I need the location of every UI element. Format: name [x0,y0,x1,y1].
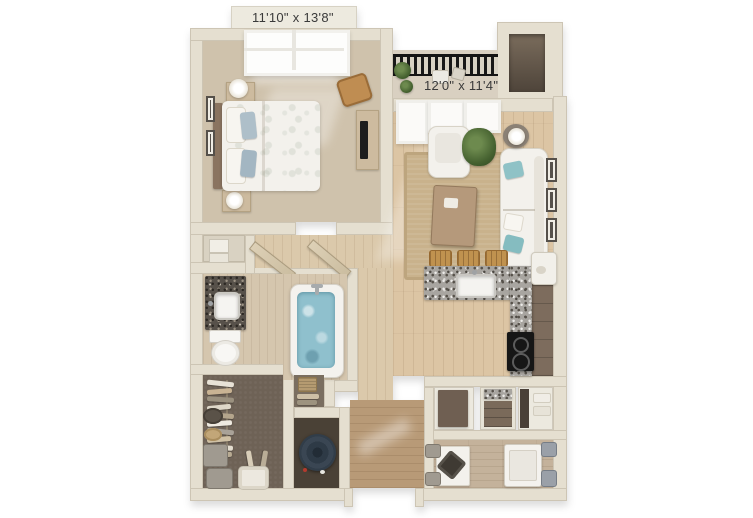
bed-duvet-fold [262,101,265,191]
laundry-cube-2 [425,472,441,486]
closet-square-basket [203,444,228,467]
kitchen-sink [456,274,496,298]
closet-round-basket-2 [204,428,222,441]
bathtub-faucet-stem [315,286,319,295]
bedroom-dimensions-label: 11'10" x 13'8" [252,10,334,25]
range-burner-2 [512,353,530,371]
living-floor-plant [462,128,496,166]
pantry-door-panel [520,389,529,428]
bedroom-tv [360,121,368,159]
vanity-faucet [208,301,213,306]
living-wall-art-2 [546,188,557,212]
sofa-seat-divider [503,209,535,211]
living-dimensions-label: 12'0" x 11'4" [424,78,498,93]
refrigerator-handle [536,266,546,274]
wall-tub-alcove-right [347,268,358,392]
water-heater-valve-red [303,468,307,472]
bar-stool-3 [485,250,508,267]
side-table-lamp-top [508,128,525,145]
wall-bath-closet-divider [190,364,294,375]
laundry-basket-2 [541,470,557,487]
bar-stool-2 [457,250,480,267]
entry-door-jamb-left [344,488,353,507]
coffee-table-decor [444,198,459,209]
kitchen-cabinets [532,284,553,376]
bar-stool-1 [429,250,452,267]
toilet-bowl [211,340,240,366]
closet-laundry-basket [238,466,269,490]
wall-bottom-outer-right [416,488,567,501]
bedroom-wall-art-2 [206,130,215,156]
coat-closet-basket [298,377,317,392]
entry-closet-door-panel [438,390,468,427]
wall-kitchen-bottom [424,376,567,387]
balcony-plant-2 [400,80,413,93]
wall-utility-right [339,407,350,501]
wall-bedroom-right [380,28,393,240]
linen-closet-box-2 [209,253,229,263]
sofa-pillow-white [503,212,525,232]
bathtub-water [297,292,335,368]
entry-door-jamb-right [415,488,424,507]
table-lamp-bottom [226,192,243,209]
wall-laundry-top [424,430,567,440]
range-burner-1 [513,337,529,353]
vanity-sink [214,292,240,320]
sofa-back-cushions [534,156,544,264]
wall-bedroom-bottom-left [190,222,296,235]
wall-closet-right [283,364,294,501]
bed-pillow-blue-bottom [240,149,257,177]
closet-hamper [206,468,233,489]
bedroom-wall-art-1 [206,96,215,122]
water-heater-valve-white [320,470,325,474]
bedroom-window [244,30,350,76]
apartment-floor-plan: 11'10" x 13'8" 12'0" x 11'4" [0,0,753,518]
water-heater [299,434,336,471]
pantry-towels-2 [533,406,551,416]
living-wall-art-1 [546,158,557,182]
laundry-cube-1 [425,444,441,458]
living-wall-art-3 [546,218,557,242]
coffee-table [430,185,477,247]
hall-dresser-top [484,389,512,399]
laundry-basket-1 [541,442,557,457]
living-window-door [396,100,428,144]
balcony-plant-1 [394,62,411,79]
pantry-towels-1 [533,393,551,403]
armchair-cushion [435,133,461,163]
linen-closet-boxes [209,239,229,253]
balcony-storage-niche [509,34,545,92]
coat-closet-clothes-2 [297,400,317,405]
table-lamp-top [229,79,248,98]
hall-floor-side [358,268,393,400]
wall-right-outer [553,96,567,501]
coat-closet-clothes [297,394,319,399]
closet-round-basket-1 [203,408,223,424]
bedroom-window-mullion-h [244,48,344,51]
kitchen-faucet [472,270,477,275]
floor-plan-image: 11'10" x 13'8" 12'0" x 11'4" [0,0,753,518]
washer-lid [509,450,537,481]
wall-bottom-outer-left [190,488,352,501]
hall-dresser-drawers [484,401,512,427]
bed-pillow-blue-top [240,111,258,139]
